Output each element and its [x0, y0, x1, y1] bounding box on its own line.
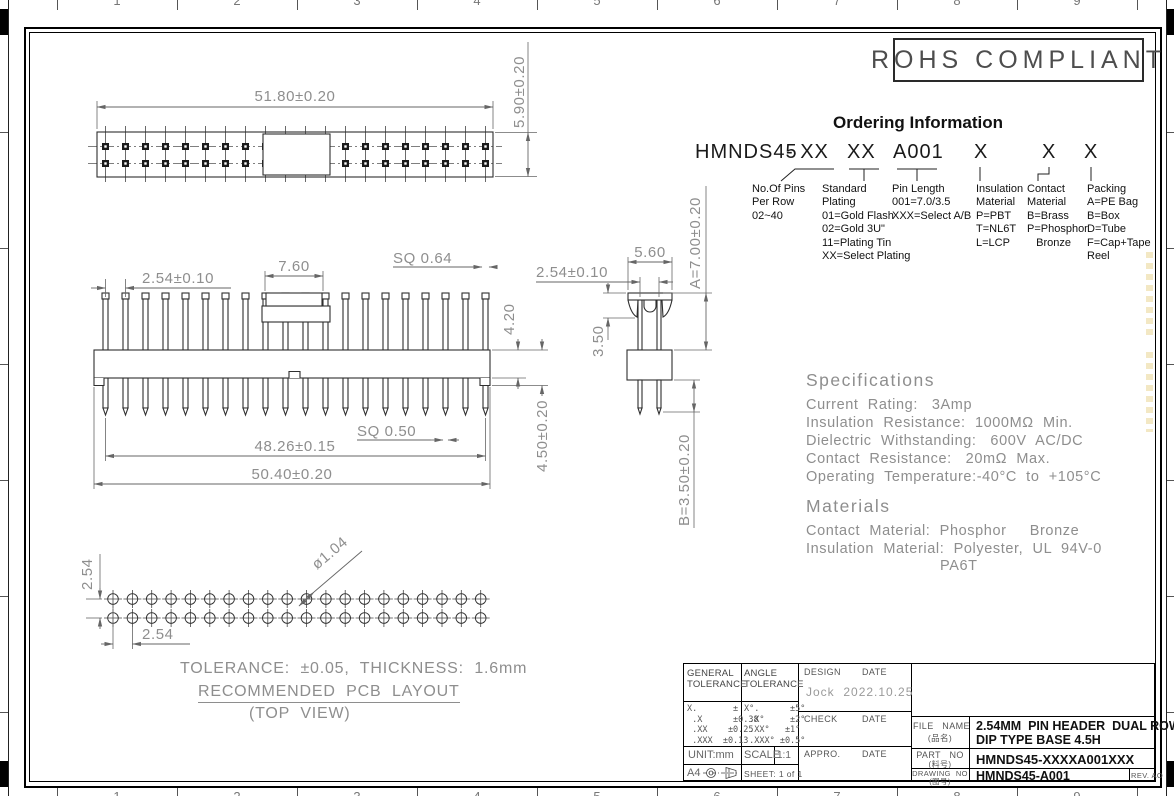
design-date-label: DATE: [862, 667, 887, 677]
spec-line: Dielectric Withstanding: 600V AC/DC: [806, 432, 1101, 450]
tolerance-row: X°. ±5°: [744, 704, 805, 715]
part-code-packing: X: [1084, 141, 1098, 164]
materials-title: Materials: [806, 496, 1102, 517]
ordering-line: Material: [1027, 196, 1088, 209]
dim-body-height: 4.20: [501, 303, 518, 335]
part-code-insulation: X: [974, 141, 988, 164]
projection-symbol: [703, 765, 739, 781]
dim-pcb-col-pitch: 2.54: [142, 626, 174, 643]
ordering-line: Reel: [1087, 250, 1151, 263]
specifications-block: Specifications Current Rating: 3AmpInsul…: [806, 370, 1101, 486]
tolerance-note: TOLERANCE: ±0.05, THICKNESS: 1.6mm: [180, 660, 527, 678]
cap-top: [266, 293, 322, 306]
front-view: 2.54±0.10 7.60 SQ 0.64 4.20 4.50±0.20 SQ…: [91, 250, 551, 489]
ordering-line: A=PE Bag: [1087, 196, 1151, 209]
ordering-line: No.Of Pins: [752, 183, 805, 196]
dim-top-height: 5.90±0.20: [511, 56, 528, 128]
material-line: Insulation Material: Polyester, UL 94V-0: [806, 540, 1102, 558]
scale-value: 1:1: [777, 750, 791, 761]
dim-side-pitch: 2.54±0.10: [536, 264, 608, 281]
ordering-line: 11=Plating Tin: [822, 237, 910, 250]
tolerance-row: .XX° ±1°: [744, 725, 805, 736]
ordering-line: B=Brass: [1027, 210, 1088, 223]
ordering-line: P=Phosphor: [1027, 223, 1088, 236]
right-standoff: [480, 378, 490, 386]
revision: REV. AO: [1131, 771, 1163, 780]
ordering-col-contact: ContactMaterialB=BrassP=Phosphor Bronze: [1027, 183, 1088, 250]
spec-line: Insulation Resistance: 1000MΩ Min.: [806, 414, 1101, 432]
scale-label: SCALE: [744, 749, 780, 761]
ordering-line: 02~40: [752, 210, 805, 223]
materials-block: Materials Contact Material: Phosphor Bro…: [806, 496, 1102, 558]
part-code-base: HMNDS45: [695, 141, 798, 164]
file-name-line1: 2.54MM PIN HEADER DUAL ROWS: [976, 719, 1174, 733]
ordering-line: D=Tube: [1087, 223, 1151, 236]
ordering-line: P=PBT: [976, 210, 1023, 223]
tolerance-row: .XXX° ±0.5°: [744, 736, 805, 747]
ordering-col-packing: PackingA=PE BagB=BoxD=TubeF=Cap+TapeReel: [1087, 183, 1151, 263]
spec-line: Current Rating: 3Amp: [806, 396, 1101, 414]
side-body: [627, 350, 672, 380]
dim-top-width: 51.80±0.20: [255, 88, 336, 105]
dim-side-width: 5.60: [634, 244, 666, 261]
ordering-col-pins: No.Of PinsPer Row02~40: [752, 183, 805, 223]
material-line: Contact Material: Phosphor Bronze: [806, 522, 1102, 540]
dim-b: B=3.50±0.20: [676, 434, 693, 526]
ordering-line: Bronze: [1027, 237, 1088, 250]
ordering-col-insulation: InsulationMaterialP=PBTT=NL6TL=LCP: [976, 183, 1023, 250]
dim-overall-width: 50.40±0.20: [252, 466, 333, 483]
rohs-compliant-box: ROHS COMPLIANT: [893, 38, 1144, 82]
spec-line: Operating Temperature:-40°C to +105°C: [806, 468, 1101, 486]
sheet-label: SHEET: 1 of 1: [744, 769, 803, 779]
angle-tolerance-label: ANGLE TOLERANCE: [744, 668, 796, 690]
ordering-line: 02=Gold 3U": [822, 223, 910, 236]
file-name-line2: DIP TYPE BASE 4.5H: [976, 733, 1101, 747]
general-tolerance-label: GENERAL TOLERANCE: [687, 668, 739, 690]
unit-label: UNIT:mm: [688, 749, 734, 761]
part-code-plating: XX: [847, 141, 876, 164]
drawing-no-label-cn: (图号): [912, 776, 968, 787]
ordering-col-length: Pin Length001=7.0/3.5XXX=Select A/B: [892, 183, 971, 223]
ordering-line: 001=7.0/3.5: [892, 196, 971, 209]
dim-cap-width: 7.60: [278, 258, 310, 275]
side-tab-top: [628, 293, 672, 300]
dim-hole-dia: ø1.04: [309, 533, 352, 573]
dim-front-pitch: 2.54±0.10: [142, 270, 214, 287]
ordering-line: T=NL6T: [976, 223, 1023, 236]
design-label: DESIGN: [804, 667, 841, 677]
ordering-line: F=Cap+Tape: [1087, 237, 1151, 250]
ordering-leaders: [781, 167, 1091, 181]
file-name-label: FILE NAME: [913, 721, 967, 731]
file-name-label-cn: (品名): [913, 732, 967, 744]
cap-body: [262, 306, 330, 322]
tolerance-row: .X° ±2°: [744, 715, 805, 726]
left-standoff: [94, 378, 104, 386]
dim-tab-height: 3.50: [590, 325, 607, 357]
ordering-line: XX=Select Plating: [822, 250, 910, 263]
angle-tolerance-values: X°. ±5° .X° ±2° .XX° ±1° .XXX° ±0.5°: [744, 704, 805, 746]
title-block: GENERAL TOLERANCE ANGLE TOLERANCE X. ± .…: [683, 663, 1155, 781]
dim-a: A=7.00±0.20: [687, 197, 704, 289]
ordering-line: Pin Length: [892, 183, 971, 196]
sheet-size: A4: [687, 767, 700, 779]
part-code-contact: X: [1042, 141, 1056, 164]
side-view: 5.60 2.54±0.10 3.50 A=7.00±0.20 B=3.50±0…: [536, 186, 712, 528]
dim-pin-span: 48.26±0.15: [255, 438, 336, 455]
ordering-line: XXX=Select A/B: [892, 210, 971, 223]
check-label: CHECK: [804, 714, 838, 724]
drawing-sheet: 123456789 123456789: [0, 0, 1174, 796]
dim-pcb-row-pitch: 2.54: [79, 558, 96, 590]
polarization-cap-top: [263, 134, 330, 175]
top-view-note: (TOP VIEW): [249, 705, 351, 723]
part-code-length: A001: [893, 141, 944, 164]
ordering-line: Packing: [1087, 183, 1151, 196]
designer-name: Jock 2022.10.25: [806, 685, 913, 699]
drawing-no-value: HMNDS45-A001: [976, 769, 1070, 783]
rohs-compliant-label: ROHS COMPLIANT: [871, 46, 1166, 75]
body-notch: [289, 372, 300, 379]
top-view: 51.80±0.20 5.90±0.20: [88, 42, 537, 182]
materials-extra: PA6T: [940, 557, 978, 575]
ordering-information-title: Ordering Information: [833, 113, 1003, 133]
pcb-layout: 2.54 2.54 ø1.04: [79, 533, 490, 649]
appro-date-label: DATE: [862, 749, 887, 759]
check-date-label: DATE: [862, 714, 887, 724]
spec-line: Contact Resistance: 20mΩ Max.: [806, 450, 1101, 468]
appro-label: APPRO.: [804, 749, 840, 759]
ordering-line: B=Box: [1087, 210, 1151, 223]
ordering-line: Per Row: [752, 196, 805, 209]
pcb-layout-note: RECOMMENDED PCB LAYOUT: [198, 683, 460, 703]
specifications-title: Specifications: [806, 370, 1101, 391]
ordering-line: Insulation: [976, 183, 1023, 196]
part-no-value: HMNDS45-XXXXA001XXX: [976, 752, 1134, 767]
dim-pin-sq: SQ 0.64: [393, 250, 452, 267]
dim-tail-sq: SQ 0.50: [357, 423, 416, 440]
dim-base-height: 4.50±0.20: [534, 400, 551, 472]
ordering-line: Material: [976, 196, 1023, 209]
part-code-pins: - XX: [786, 141, 829, 164]
ordering-line: L=LCP: [976, 237, 1023, 250]
ordering-line: Contact: [1027, 183, 1088, 196]
